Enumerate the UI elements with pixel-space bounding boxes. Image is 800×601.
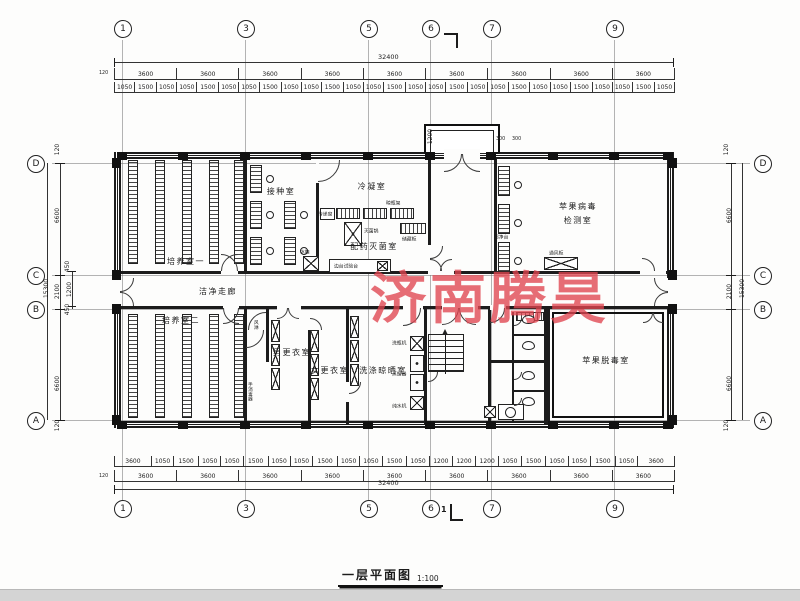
dim-segment: 3600 [238,68,300,80]
toilet [522,371,535,380]
equipment-box [350,316,359,338]
dim-tick [673,58,674,67]
wall-pier [363,152,373,160]
dim-segment: 3600 [176,68,238,80]
shelf-rack [234,160,244,264]
work-bench [284,237,296,265]
dim-segment: 3600 [176,470,238,482]
room-label-condensation: 冷凝室 [358,181,387,192]
equipment-box [350,340,359,362]
shelf-rack [155,160,165,264]
dim-segment: 1050 [529,82,549,93]
shelf-rack [209,160,219,264]
grid-bubble-left-D: D [27,155,45,173]
dim-segment: 1050 [545,456,567,467]
dim-segment: 1500 [243,456,268,467]
wall-pier [301,152,311,160]
interior-wall [244,157,247,273]
dim-right-overall: 15300 [739,279,746,298]
room-label-inoculation: 接种室 [267,186,296,197]
dim-segment: 1050 [405,82,425,93]
equipment-box [303,256,319,271]
dim-tick [114,485,115,494]
dim-segment: 1050 [425,82,445,93]
floor-plan-drawing: 1 3 5 6 7 9 1 3 5 6 7 9 D C B A D C B A … [0,0,800,600]
dim-segment: 1200 [475,456,498,467]
shelf-rack [234,314,244,418]
dim-segment: 1050 [343,82,363,93]
room-label-virus-test-2: 检测室 [564,215,593,226]
grid-bubble-bottom-3: 3 [237,500,255,518]
dim-segment: 1050 [176,82,196,93]
stool [514,181,522,189]
section-mark-number-bottom: 1 [441,505,447,514]
staircase-steps [428,334,464,372]
equipment-box [310,330,319,352]
bench-counter [336,208,360,219]
clean-bench [498,166,510,196]
wall-pier [112,415,121,425]
dim-segment: 1200 [429,456,452,467]
dim-segment: 1050 [268,456,290,467]
wall-pier [548,152,558,160]
grid-bubble-right-C: C [754,267,772,285]
dim-segment: 1050 [612,82,632,93]
dim-segment: 1050 [568,456,590,467]
dim-tick [55,275,65,276]
grid-bubble-top-9: 9 [606,20,624,38]
wall-pier [301,421,311,429]
dim-segment: 3600 [301,68,363,80]
dim-segment: 3600 [550,470,612,482]
dim-left-overall: 15300 [43,279,50,298]
wall-pier [112,158,121,168]
wall-pier [548,421,558,429]
dim-segment: 1050 [359,456,381,467]
dim-segment: 3600 [612,470,674,482]
stool [300,211,308,219]
grid-bubble-left-A: A [27,412,45,430]
dim-segment: 3600 [363,68,425,80]
bench-counter [363,208,387,219]
dim-segment: 1050 [220,456,242,467]
dim-segment: 3600 [114,68,176,80]
dim-segment: 1500 [508,82,530,93]
equipment-box [271,368,280,390]
equip-label-sterilizer: 灭菌锅 [364,227,378,234]
dim-segment: 1050 [218,82,238,93]
equip-label-bottle-rack: 晾瓶架 [386,199,400,206]
stool [266,247,274,255]
room-label-women-changing: 女更衣室 [311,365,349,376]
dim-tick [114,58,115,67]
grid-bubble-top-1: 1 [114,20,132,38]
interior-wall [266,308,269,362]
wall-pier [486,152,496,160]
equip-label-fridge: 冰箱 [300,248,310,255]
dim-right-offset-bottom: 120 [723,420,730,431]
wall-pier [668,270,677,280]
room-label-sterilization: 配药灭菌室 [350,241,398,252]
dim-left-450a: 450 [64,261,71,272]
dim-segment: 1500 [382,456,407,467]
dim-vestibule-depth: 1200 [427,129,434,144]
wall-pier [668,304,677,314]
dim-segment: 1500 [445,82,467,93]
dim-segment: 1050 [363,82,383,93]
dim-top-overall: 32400 [378,53,399,61]
dim-segment: 3600 [550,68,612,80]
work-bench [250,237,262,265]
bottom-gray-bar [0,589,800,601]
shelf-rack [128,314,138,418]
equipment-box [410,396,424,410]
room-label-men-changing: 男更衣室 [273,347,311,358]
equipment-box [484,406,496,418]
bench-counter [390,208,414,219]
grid-bubble-left-C: C [27,267,45,285]
dim-segment: 1050 [498,456,520,467]
dim-line [114,62,674,63]
dim-segment: 1050 [156,82,176,93]
equip-label-air-shower: 风淋 [252,320,259,330]
grid-bubble-right-A: A [754,412,772,430]
grid-bubble-bottom-1: 1 [114,500,132,518]
wall-pier [240,152,250,160]
wall-pier [668,158,677,168]
dim-segment: 3600 [487,470,549,482]
equip-label-distiller: 蒸馏器 [392,370,406,377]
stool [514,219,522,227]
dim-segment: 1050 [467,82,487,93]
grid-line-vertical [614,40,615,500]
dim-left-450b: 450 [64,304,71,315]
drawing-title-scale: 1:100 [417,574,439,583]
dim-segment: 3600 [425,68,487,80]
dim-segment: 3600 [114,456,151,467]
dim-segment: 1500 [321,82,343,93]
dim-right-d-c: 6600 [726,208,733,223]
watermark-text: 济南腾昊 [370,254,610,335]
toilet [522,341,535,350]
work-bench [284,201,296,229]
equip-label-clean-bench: 超净台 [494,233,508,240]
dim-segment: 1050 [592,82,612,93]
dim-segment: 1050 [654,82,674,93]
equip-label-pass-window: 传递窗 [318,210,332,217]
shelf-rack [155,314,165,418]
dim-segment: 3600 [637,456,674,467]
stool [266,211,274,219]
dim-tick [726,275,736,276]
dim-row-bottom-detail: 3600105015001050105015001050105015001050… [114,456,675,467]
dim-left-b-a: 6600 [54,376,61,391]
dim-segment: 1500 [259,82,281,93]
dim-segment: 3600 [301,470,363,482]
exterior-wall-top [114,152,674,159]
dim-right-offset-top: 120 [723,144,730,155]
dim-row-top-bays: 360036003600360036003600360036003600 [114,68,675,80]
drawing-title-text: 一层平面图 [342,566,412,583]
dim-segment: 1050 [281,82,301,93]
wall-pier [486,421,496,429]
dim-segment: 1050 [406,456,428,467]
dim-segment: 1500 [196,82,218,93]
washbasin [505,407,516,418]
dim-tick [726,163,736,164]
wall-pier [112,304,121,314]
equip-label-hand-sanitizer: 手消毒器 [246,382,253,401]
grid-bubble-bottom-7: 7 [483,500,501,518]
equipment-box [310,378,319,400]
dim-segment: 1500 [134,82,156,93]
grid-bubble-bottom-6: 6 [422,500,440,518]
dim-segment: 1500 [173,456,198,467]
equipment-box [410,336,424,351]
dim-segment: 1200 [452,456,475,467]
dim-segment: 1050 [301,82,321,93]
dim-segment: 3600 [425,470,487,482]
clean-bench [498,204,510,234]
dim-segment: 3600 [612,68,674,80]
room-label-corridor: 洁净走廊 [199,286,237,297]
grid-bubble-top-7: 7 [483,20,501,38]
door-arc [506,364,522,380]
dim-left-1200: 1200 [66,282,73,297]
stool [266,175,274,183]
grid-bubble-right-B: B [754,301,772,319]
door-arc [296,138,340,182]
interior-wall [514,390,546,392]
wall-pier [240,421,250,429]
equip-label-side-bench: 边台试验台 [334,262,358,269]
wall-pier [425,421,435,429]
dim-segment: 3600 [487,68,549,80]
wall-pier [112,270,121,280]
dim-segment: 1500 [312,456,337,467]
dim-tick [673,485,674,494]
exterior-wall-bottom [114,421,674,428]
dim-segment: 1500 [383,82,405,93]
work-bench [250,201,262,229]
dim-segment: 1050 [487,82,507,93]
wall-pier [363,421,373,429]
dim-segment: 1500 [632,82,654,93]
equipment-box [410,355,424,372]
dim-left-c-b: 2100 [54,284,61,299]
wall-pier [668,415,677,425]
grid-bubble-top-5: 5 [360,20,378,38]
grid-bubble-left-B: B [27,301,45,319]
room-label-virus-test-1: 苹果病毒 [559,201,597,212]
interior-wall [488,360,546,363]
grid-line-vertical [122,40,123,500]
dim-bottom-offset: 120 [99,473,108,479]
dim-segment: 1500 [570,82,592,93]
door-opening [346,382,349,402]
dim-left-offset-top: 120 [54,144,61,155]
dim-segment: 1050 [238,82,258,93]
room-label-culture2: 培养室二 [162,315,200,326]
dim-segment: 1500 [521,456,546,467]
dim-vestibule-w2: 300 [512,136,521,142]
dim-segment: 1050 [337,456,359,467]
section-mark-bar [450,519,463,521]
work-bench [250,165,262,193]
shelf-rack [209,314,219,418]
grid-bubble-top-3: 3 [237,20,255,38]
dim-segment: 1050 [198,456,220,467]
dim-segment: 3600 [238,470,300,482]
dim-right-b-a: 6600 [726,376,733,391]
dim-row-top-detail: 1050150010501050150010501050150010501050… [114,82,675,93]
dim-line [114,489,674,490]
grid-bubble-bottom-9: 9 [606,500,624,518]
dim-segment: 1050 [151,456,173,467]
dim-segment: 1050 [550,82,570,93]
grid-bubble-bottom-5: 5 [360,500,378,518]
shelf-rack [182,160,192,264]
dim-left-offset-bottom: 120 [54,420,61,431]
dim-top-offset: 120 [99,70,108,76]
dim-bottom-overall: 32400 [378,479,399,487]
interior-wall [244,308,247,424]
equip-label-bottle-washer: 洗瓶机 [392,339,406,346]
equipment-box [410,374,424,391]
wall-pier [609,421,619,429]
drawing-title: 一层平面图 1:100 [338,566,443,587]
dim-segment: 1050 [290,456,312,467]
dim-segment: 3600 [114,470,176,482]
bench-counter [400,223,426,234]
shelf-rack [182,314,192,418]
wall-pier [178,421,188,429]
wall-pier [609,152,619,160]
grid-bubble-right-D: D [754,155,772,173]
dim-segment: 1050 [114,82,134,93]
dim-tick [726,309,736,310]
dim-segment: 1500 [590,456,615,467]
room-label-culture1: 培养室一 [167,256,205,267]
room-label-detox: 苹果脱毒室 [582,355,630,366]
dim-segment: 1050 [615,456,637,467]
grid-bubble-top-6: 6 [422,20,440,38]
equipment-box [271,320,280,342]
dim-vestibule-w1: 300 [496,136,505,142]
equip-label-storage-cabinet: 储藏柜 [402,235,416,242]
wall-pier [178,152,188,160]
equip-label-water-purifier: 纯水机 [392,402,406,409]
dim-left-d-c: 6600 [54,208,61,223]
shelf-rack [128,160,138,264]
wall-pier [425,152,435,160]
section-mark-bar [456,33,458,48]
dim-right-c-b: 2100 [726,284,733,299]
dim-tick [55,163,65,164]
